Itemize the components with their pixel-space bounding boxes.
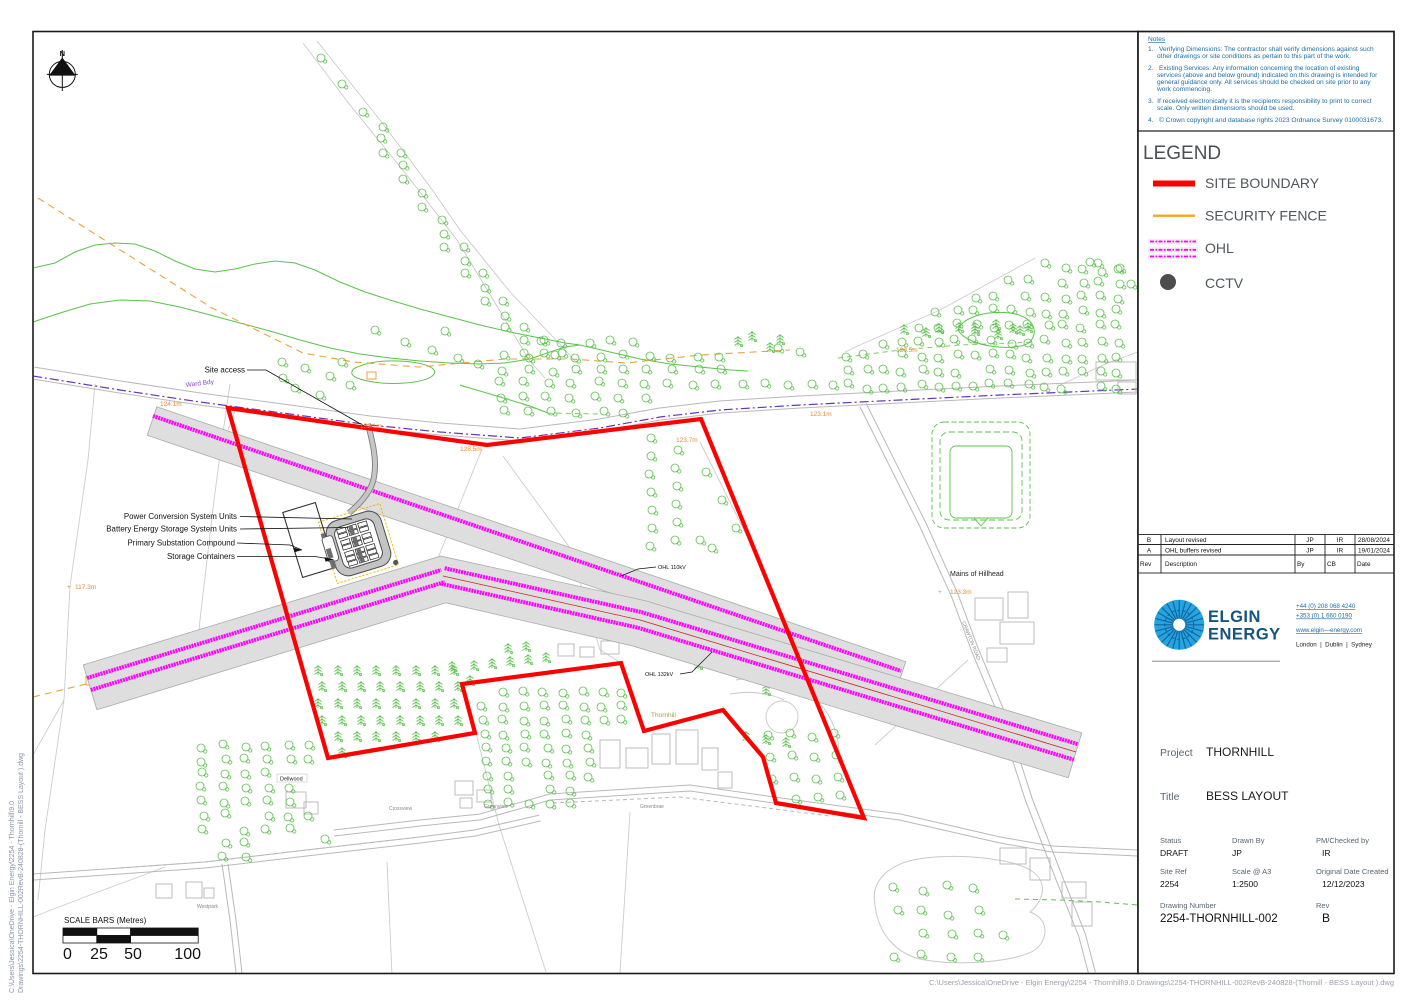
svg-text:Site Ref: Site Ref <box>1160 867 1188 876</box>
svg-text:SCALE BARS (Metres): SCALE BARS (Metres) <box>64 916 147 925</box>
svg-text:Drawn By: Drawn By <box>1232 836 1265 845</box>
svg-text:B: B <box>1322 911 1330 925</box>
svg-text:3. If received electronically: 3. If received electronically it is the … <box>1148 98 1372 105</box>
svg-text:Description: Description <box>1165 561 1197 568</box>
svg-text:1. Verifying Dimensions: Th: 1. Verifying Dimensions: The contractor … <box>1148 46 1374 53</box>
svg-text:100: 100 <box>174 946 201 963</box>
svg-text:Mains of Hillhead: Mains of Hillhead <box>950 571 1004 578</box>
svg-text:IR: IR <box>1337 548 1344 555</box>
svg-text:Dellwood: Dellwood <box>280 777 303 783</box>
svg-text:122.1m: 122.1m <box>360 423 382 430</box>
svg-text:B: B <box>1147 537 1151 544</box>
svg-text:1:2500: 1:2500 <box>1232 879 1258 889</box>
svg-text:services (above and below grou: services (above and below ground) indica… <box>1157 72 1378 79</box>
svg-text:Power Conversion System Units: Power Conversion System Units <box>124 512 237 521</box>
svg-text:Title: Title <box>1160 791 1180 803</box>
svg-text:Site access: Site access <box>205 366 245 375</box>
svg-text:12/12/2023: 12/12/2023 <box>1322 879 1365 889</box>
svg-text:128.5m: 128.5m <box>460 446 482 453</box>
svg-text:IR: IR <box>1322 848 1331 858</box>
svg-text:123.7m: 123.7m <box>676 437 698 444</box>
svg-text:Rev: Rev <box>1316 901 1330 910</box>
svg-text:2254: 2254 <box>1160 879 1179 889</box>
svg-text:+353 (0) 1 660 0190: +353 (0) 1 660 0190 <box>1296 613 1352 620</box>
svg-text:ENERGY: ENERGY <box>1208 626 1281 644</box>
svg-text:DRAFT: DRAFT <box>1160 848 1188 858</box>
svg-text:117.3m: 117.3m <box>75 584 96 591</box>
svg-text:124.1m: 124.1m <box>160 401 182 408</box>
svg-text:Project: Project <box>1160 747 1193 759</box>
svg-text:+44 (0) 208 068 4240: +44 (0) 208 068 4240 <box>1296 603 1356 610</box>
svg-text:123.3m: 123.3m <box>950 589 972 596</box>
svg-text:BESS LAYOUT: BESS LAYOUT <box>1206 789 1289 803</box>
svg-text:4. © Crown copyright and dat: 4. © Crown copyright and database rights… <box>1148 116 1383 124</box>
svg-text:SECURITY FENCE: SECURITY FENCE <box>1205 208 1327 224</box>
svg-text:LEGEND: LEGEND <box>1143 143 1221 164</box>
svg-text:OHL 110kV: OHL 110kV <box>658 565 686 571</box>
svg-text:28/08/2024: 28/08/2024 <box>1358 537 1390 544</box>
svg-text:work commencing.: work commencing. <box>1156 86 1212 93</box>
svg-text:other drawings or site conditi: other drawings or site conditions as per… <box>1157 53 1351 60</box>
svg-text:JP: JP <box>1306 537 1313 544</box>
svg-text:2. Existing Services: Any i: 2. Existing Services: Any information co… <box>1148 65 1360 72</box>
svg-text:CB: CB <box>1327 561 1336 568</box>
svg-text:123.1m: 123.1m <box>810 411 832 418</box>
svg-text:Original Date Created: Original Date Created <box>1316 867 1389 876</box>
svg-text:19/01/2024: 19/01/2024 <box>1358 548 1390 555</box>
svg-text:Greenbrae: Greenbrae <box>640 804 664 810</box>
svg-text:Drawings\2254-THORNHILL-002Rev: Drawings\2254-THORNHILL-002RevB-240828-(… <box>18 753 25 993</box>
svg-text:JP: JP <box>1306 548 1313 555</box>
svg-text:JP: JP <box>1232 848 1242 858</box>
svg-text:Greenview: Greenview <box>484 804 508 810</box>
svg-text:CCTV: CCTV <box>1205 275 1244 291</box>
svg-text:London | Dublin | Sydney: London | Dublin | Sydney <box>1296 642 1373 649</box>
svg-text:PM/Checked by: PM/Checked by <box>1316 836 1369 845</box>
svg-text:Battery Energy Storage System: Battery Energy Storage System Units <box>106 525 237 534</box>
svg-text:+: + <box>938 589 942 596</box>
svg-text:2254-THORNHILL-002: 2254-THORNHILL-002 <box>1160 913 1278 925</box>
svg-text:ELGIN: ELGIN <box>1208 608 1261 626</box>
svg-text:Date: Date <box>1357 561 1371 568</box>
svg-text:C:\Users\Jessica\OneDrive - El: C:\Users\Jessica\OneDrive - Elgin Energy… <box>9 801 16 993</box>
svg-text:scale. Only written dimensions: scale. Only written dimensions should be… <box>1157 105 1295 112</box>
svg-text:OHL buffers revised: OHL buffers revised <box>1165 548 1222 555</box>
svg-text:A: A <box>1147 548 1152 555</box>
svg-text:Drawing Number: Drawing Number <box>1160 901 1217 910</box>
svg-text:IR: IR <box>1337 537 1344 544</box>
svg-text:Layout revised: Layout revised <box>1165 537 1207 544</box>
svg-text:Storage Containers: Storage Containers <box>167 552 235 561</box>
svg-text:Westpark: Westpark <box>197 904 219 910</box>
svg-text:25: 25 <box>90 946 108 963</box>
svg-text:THORNHILL: THORNHILL <box>1206 745 1274 759</box>
svg-text:Notes: Notes <box>1148 36 1166 43</box>
svg-text:Thornhill: Thornhill <box>651 712 676 719</box>
svg-text:0: 0 <box>63 946 72 963</box>
svg-text:C:\Users\Jessica\OneDrive - El: C:\Users\Jessica\OneDrive - Elgin Energy… <box>929 978 1394 987</box>
svg-text:By: By <box>1297 561 1305 568</box>
svg-text:OHL: OHL <box>1205 240 1234 256</box>
svg-text:Primary Substation Compound: Primary Substation Compound <box>128 539 235 548</box>
svg-text:Crossview: Crossview <box>389 806 412 812</box>
svg-text:N: N <box>60 49 65 58</box>
svg-text:Status: Status <box>1160 836 1182 845</box>
svg-text:general guidance only. All se: general guidance only. All services shou… <box>1157 79 1371 86</box>
svg-text:120.5m: 120.5m <box>896 347 918 354</box>
svg-text:Scale @ A3: Scale @ A3 <box>1232 867 1271 876</box>
svg-text:SITE BOUNDARY: SITE BOUNDARY <box>1205 175 1320 191</box>
svg-text:OHL 132kV: OHL 132kV <box>645 672 674 678</box>
svg-text:www.elgin—energy.com: www.elgin—energy.com <box>1295 627 1362 634</box>
svg-text:Rev: Rev <box>1140 561 1152 568</box>
svg-text:+: + <box>67 584 71 591</box>
svg-text:50: 50 <box>124 946 142 963</box>
